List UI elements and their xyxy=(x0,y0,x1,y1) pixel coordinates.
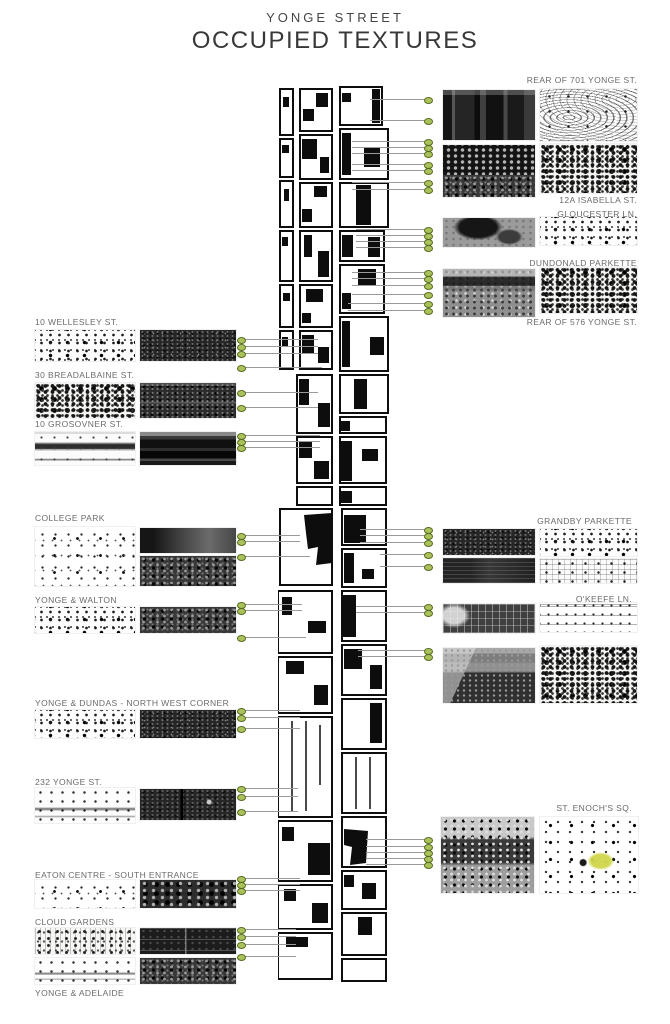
photo-swatch-dundonald xyxy=(443,269,535,317)
photo-swatch-st-enochs xyxy=(441,817,534,893)
map-marker-dot xyxy=(237,794,246,801)
map-marker-dot xyxy=(237,554,246,561)
photo-swatch-okeefe xyxy=(443,604,535,633)
photo-swatch-12a-isabella xyxy=(443,145,535,197)
texture-swatch-eaton-centre xyxy=(35,880,135,908)
map-marker-dot xyxy=(237,390,246,397)
map-marker-dot xyxy=(237,602,246,609)
photo-swatch-gloucester xyxy=(443,218,535,247)
photo-swatch-yonge-dundas xyxy=(140,710,236,738)
photo-swatch-wellesley xyxy=(140,330,236,361)
location-label-yonge-adelaide: YONGE & ADELAIDE xyxy=(35,989,124,998)
texture-swatch-grosovner xyxy=(35,432,135,465)
map-marker-dot xyxy=(237,934,246,941)
map-marker-dot xyxy=(237,954,246,961)
texture-swatch-12a-isabella xyxy=(540,144,637,193)
map-marker-dot xyxy=(237,809,246,816)
location-label-grosovner: 10 GROSOVNER ST. xyxy=(35,420,123,429)
texture-swatch-grandby-2 xyxy=(540,559,637,583)
map-marker-dot xyxy=(237,351,246,358)
texture-swatch-232-yonge xyxy=(35,788,135,823)
map-marker-dot xyxy=(237,433,246,440)
map-marker-dot xyxy=(237,942,246,949)
map-marker-dot xyxy=(237,344,246,351)
map-marker-dot xyxy=(237,445,246,452)
location-label-college-park: COLLEGE PARK xyxy=(35,514,105,523)
texture-swatch-701-yonge xyxy=(540,89,637,141)
photo-swatch-cloud-gardens-1 xyxy=(140,928,236,954)
texture-swatch-yonge-dundas xyxy=(35,710,135,738)
texture-swatch-st-enochs xyxy=(540,817,638,893)
map-marker-dot xyxy=(237,927,246,934)
map-marker-dot xyxy=(237,882,246,889)
texture-swatch-yonge-walton xyxy=(35,607,135,633)
map-marker-dot xyxy=(237,608,246,615)
perforated-wall-detail xyxy=(443,145,535,175)
map-marker-dot xyxy=(237,405,246,412)
map-marker-dot xyxy=(237,439,246,446)
location-label-701-yonge: REAR OF 701 YONGE ST. xyxy=(437,76,637,85)
poster: YONGE STREET OCCUPIED TEXTURES xyxy=(0,0,670,1024)
location-label-eaton-centre: EATON CENTRE - SOUTH ENTRANCE xyxy=(35,871,199,880)
photo-swatch-232-yonge xyxy=(140,789,236,820)
photo-swatch-yonge-walton xyxy=(140,607,236,633)
map-marker-dot xyxy=(237,876,246,883)
map-marker-dot xyxy=(237,533,246,540)
location-label-st-enochs: ST. ENOCH'S SQ. xyxy=(432,804,632,813)
map-marker-dot xyxy=(237,539,246,546)
map-marker-dot xyxy=(237,786,246,793)
photo-swatch-grandby-2 xyxy=(443,558,535,583)
map-marker-dot xyxy=(237,365,246,372)
poster-title: OCCUPIED TEXTURES xyxy=(0,27,670,55)
location-label-yonge-walton: YONGE & WALTON xyxy=(35,596,117,605)
photo-swatch-grandby-1 xyxy=(443,529,535,555)
map-marker-dot xyxy=(237,337,246,344)
location-label-yonge-dundas: YONGE & DUNDAS - NORTH WEST CORNER xyxy=(35,699,229,708)
map-marker-dot xyxy=(237,708,246,715)
gravel-detail xyxy=(443,175,535,197)
location-label-12a-isabella: 12A ISABELLA ST. xyxy=(437,196,637,205)
texture-swatch-cloud-gardens-1 xyxy=(35,928,135,954)
photo-swatch-eaton-centre xyxy=(140,880,236,908)
photo-swatch-college-park-1 xyxy=(140,528,236,553)
texture-swatch-dundonald xyxy=(540,267,637,313)
texture-swatch-cloud-gardens-2 xyxy=(35,958,135,984)
photo-swatch-laneway xyxy=(443,648,535,703)
location-label-576-yonge: REAR OF 576 YONGE ST. xyxy=(437,318,637,327)
map-marker-dot xyxy=(237,635,246,642)
photo-swatch-grosovner xyxy=(140,432,236,465)
location-label-232-yonge: 232 YONGE ST. xyxy=(35,778,102,787)
map-marker-dot xyxy=(237,726,246,733)
yonge-street-map xyxy=(278,85,442,983)
location-label-cloud-gardens: CLOUD GARDENS xyxy=(35,918,114,927)
location-label-breadalbaine: 30 BREADALBAINE ST. xyxy=(35,371,134,380)
photo-swatch-cloud-gardens-2 xyxy=(140,958,236,984)
texture-swatch-wellesley xyxy=(35,330,135,361)
photo-swatch-college-park-2 xyxy=(140,556,236,586)
texture-swatch-college-park xyxy=(35,527,135,586)
photo-swatch-701-yonge xyxy=(443,90,535,140)
map-marker-dot xyxy=(237,715,246,722)
texture-swatch-breadalbaine xyxy=(35,383,135,418)
location-label-wellesley: 10 WELLESLEY ST. xyxy=(35,318,118,327)
poster-kicker: YONGE STREET xyxy=(0,10,670,25)
texture-swatch-gloucester xyxy=(540,217,637,245)
texture-swatch-okeefe xyxy=(540,603,637,632)
photo-swatch-breadalbaine xyxy=(140,383,236,418)
location-label-grandby: GRANDBY PARKETTE xyxy=(432,517,632,526)
texture-swatch-laneway xyxy=(540,646,637,703)
map-marker-dot xyxy=(237,888,246,895)
texture-swatch-grandby-1 xyxy=(540,529,637,556)
